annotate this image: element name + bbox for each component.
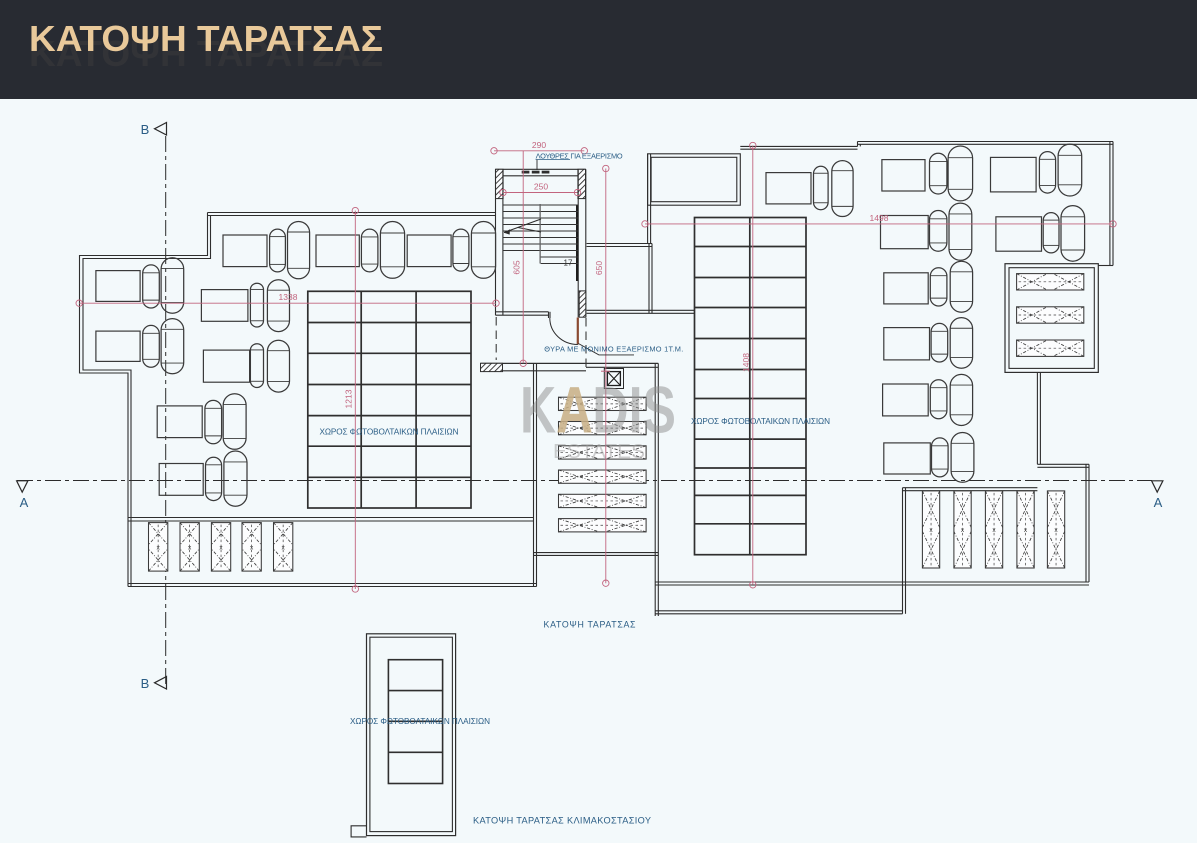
svg-text:17: 17: [564, 259, 573, 268]
svg-text:ΧΩΡΟΣ ΦΩΤΟΒΟΛΤΑΙΚΩΝ ΠΛΑΙΣΙΩΝ: ΧΩΡΟΣ ΦΩΤΟΒΟΛΤΑΙΚΩΝ ΠΛΑΙΣΙΩΝ: [350, 717, 490, 726]
svg-text:ΧΩΡΟΣ ΦΩΤΟΒΟΛΤΑΙΚΩΝ ΠΛΑΙΣΙΩΝ: ΧΩΡΟΣ ΦΩΤΟΒΟΛΤΑΙΚΩΝ ΠΛΑΙΣΙΩΝ: [320, 427, 459, 436]
svg-text:1408: 1408: [741, 353, 751, 372]
svg-text:1498: 1498: [870, 213, 889, 223]
svg-text:B: B: [141, 122, 150, 137]
svg-text:605: 605: [512, 260, 522, 274]
svg-text:ΚΑΤΟΨΗ ΤΑΡΑΤΣΑΣ ΚΛΙΜΑΚΟΣΤΑΣΙ: ΚΑΤΟΨΗ ΤΑΡΑΤΣΑΣ ΚΛΙΜΑΚΟΣΤΑΣΙΟΥ: [473, 816, 651, 826]
svg-text:290: 290: [532, 140, 546, 150]
svg-text:KADIS: KADIS: [520, 373, 676, 447]
svg-text:A: A: [556, 373, 593, 447]
svg-text:1338: 1338: [279, 292, 298, 302]
svg-text:B: B: [141, 676, 150, 691]
svg-text:ΛΟΥΘΡΕΣ ΓΙΑ ΕΞΑΕΡΙΣΜΟ: ΛΟΥΘΡΕΣ ΓΙΑ ΕΞΑΕΡΙΣΜΟ: [536, 151, 623, 160]
svg-text:ΚΑΤΟΨΗ ΤΑΡΑΤΣΑΣ: ΚΑΤΟΨΗ ΤΑΡΑΤΣΑΣ: [544, 620, 637, 630]
svg-text:ΧΩΡΟΣ ΦΩΤΟΒΟΛΤΑΙΚΩΝ ΠΛΑΙΣΙΩΝ: ΧΩΡΟΣ ΦΩΤΟΒΟΛΤΑΙΚΩΝ ΠΛΑΙΣΙΩΝ: [691, 417, 830, 426]
svg-text:A: A: [20, 495, 29, 510]
svg-text:1213: 1213: [344, 389, 354, 408]
svg-text:ΘΥΡΑ ΜΕ ΜΟΝΙΜΟ ΕΞΑΕΡΙΣΜΟ 1: ΘΥΡΑ ΜΕ ΜΟΝΙΜΟ ΕΞΑΕΡΙΣΜΟ 1Τ.Μ.: [544, 344, 683, 353]
svg-text:A: A: [1154, 495, 1163, 510]
svg-text:ESTATES: ESTATES: [553, 441, 645, 463]
svg-text:ΚΑΤΟΨΗ ΤΑΡΑΤΣΑΣ: ΚΑΤΟΨΗ ΤΑΡΑΤΣΑΣ: [29, 33, 383, 74]
svg-text:650: 650: [594, 261, 604, 275]
svg-text:250: 250: [534, 182, 548, 192]
